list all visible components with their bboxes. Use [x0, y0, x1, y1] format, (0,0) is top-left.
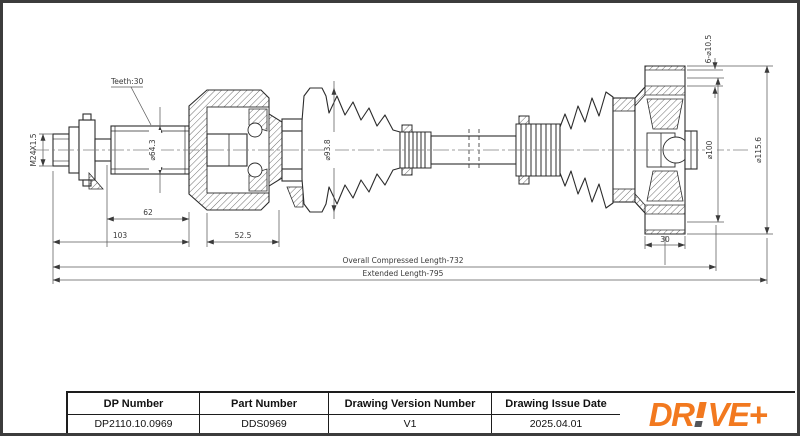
label-flange-diameter: ⌀115.6 — [754, 137, 763, 163]
title-block-table: DP Number Part Number Drawing Version Nu… — [66, 391, 622, 435]
exclamation-icon — [695, 402, 707, 427]
label-spline-diameter: ⌀64.3 — [148, 139, 157, 160]
dp-number-value: DP2110.10.0969 — [68, 415, 200, 433]
label-103: 103 — [113, 231, 128, 240]
drawing-version-header: Drawing Version Number — [329, 393, 492, 415]
axle-technical-drawing: Teeth:30 M24X1.5 ⌀64.3 62 103 52.5 ⌀93.8… — [3, 3, 797, 388]
logo-text-suffix: VE+ — [707, 398, 766, 431]
label-bolt-holes: 6-⌀10.5 — [704, 34, 713, 63]
logo-text-prefix: DR — [649, 398, 694, 431]
drawing-version-value: V1 — [329, 415, 492, 433]
drawing-issue-date-header: Drawing Issue Date — [492, 393, 620, 415]
dp-number-header: DP Number — [68, 393, 200, 415]
logo-box: DR VE+ — [620, 391, 795, 435]
drive-plus-logo: DR VE+ — [649, 398, 766, 431]
drawing-issue-date-value: 2025.04.01 — [492, 415, 620, 433]
label-extended-length: Extended Length-795 — [363, 269, 444, 278]
label-boot-diameter: ⌀93.8 — [323, 139, 332, 160]
threaded-stub-end — [53, 114, 111, 189]
label-compressed-length: Overall Compressed Length-732 — [342, 256, 463, 265]
label-30: 30 — [660, 235, 670, 244]
part-number-value: DDS0969 — [200, 415, 329, 433]
part-number-header: Part Number — [200, 393, 329, 415]
drawing-sheet: Teeth:30 M24X1.5 ⌀64.3 62 103 52.5 ⌀93.8… — [0, 0, 800, 436]
label-teeth: Teeth:30 — [110, 77, 144, 86]
label-bolt-circle: ⌀100 — [705, 140, 714, 159]
label-thread: M24X1.5 — [29, 133, 38, 166]
label-62: 62 — [143, 208, 153, 217]
label-52-5: 52.5 — [235, 231, 252, 240]
